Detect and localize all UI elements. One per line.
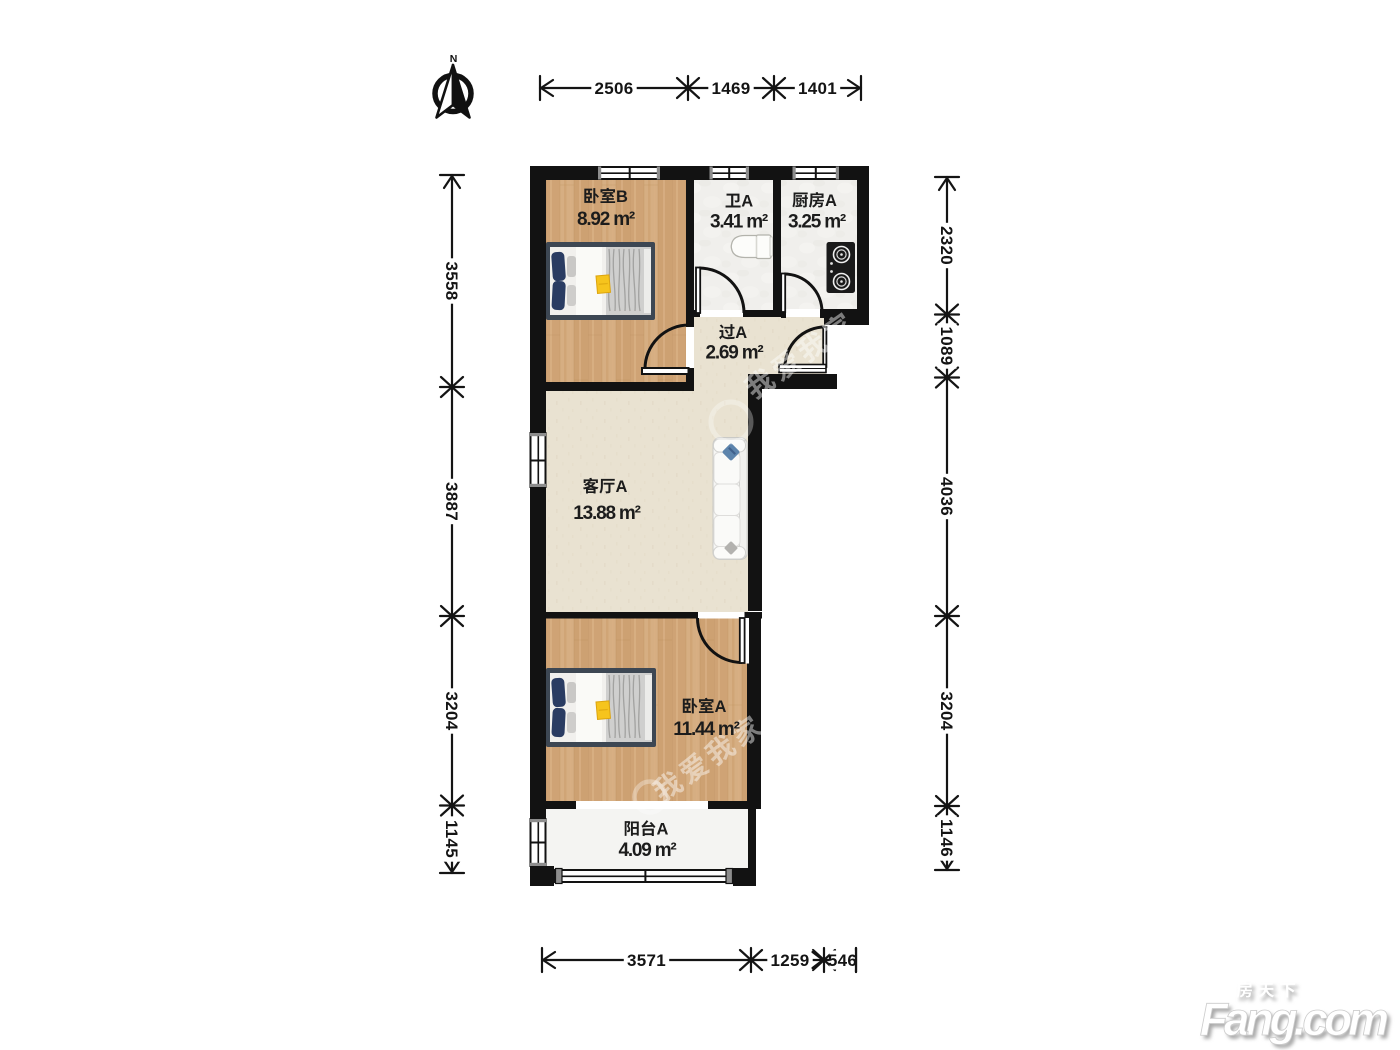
svg-text:3887: 3887 bbox=[442, 482, 461, 521]
svg-text:2320: 2320 bbox=[937, 226, 956, 265]
svg-text:13.88 m²: 13.88 m² bbox=[573, 503, 640, 524]
svg-text:4.09 m²: 4.09 m² bbox=[618, 840, 676, 861]
svg-text:A: A bbox=[616, 478, 628, 496]
svg-text:3558: 3558 bbox=[442, 261, 461, 300]
svg-text:2.69 m²: 2.69 m² bbox=[705, 343, 763, 364]
svg-text:A: A bbox=[735, 324, 747, 342]
svg-text:4036: 4036 bbox=[937, 477, 956, 516]
svg-text:N: N bbox=[450, 53, 458, 65]
svg-text:3204: 3204 bbox=[442, 691, 461, 730]
svg-text:546: 546 bbox=[828, 951, 857, 970]
svg-text:Fang.com: Fang.com bbox=[1200, 993, 1387, 1045]
svg-text:1259: 1259 bbox=[770, 951, 809, 970]
svg-text:1469: 1469 bbox=[711, 79, 750, 98]
svg-text:11.44 m²: 11.44 m² bbox=[673, 719, 739, 740]
svg-text:3.41 m²: 3.41 m² bbox=[710, 212, 768, 233]
svg-text:1401: 1401 bbox=[798, 79, 837, 98]
svg-text:A: A bbox=[825, 192, 837, 210]
svg-text:1145: 1145 bbox=[442, 820, 461, 858]
svg-text:3571: 3571 bbox=[627, 951, 666, 970]
svg-text:A: A bbox=[657, 821, 669, 839]
svg-text:B: B bbox=[616, 188, 628, 206]
svg-text:3204: 3204 bbox=[937, 691, 956, 730]
svg-text:3.25 m²: 3.25 m² bbox=[788, 212, 846, 233]
svg-text:A: A bbox=[741, 193, 753, 211]
svg-text:A: A bbox=[715, 698, 727, 716]
svg-text:1146: 1146 bbox=[937, 819, 956, 857]
svg-text:8.92 m²: 8.92 m² bbox=[577, 209, 635, 230]
svg-text:2506: 2506 bbox=[594, 79, 633, 98]
svg-text:1089: 1089 bbox=[937, 326, 956, 365]
